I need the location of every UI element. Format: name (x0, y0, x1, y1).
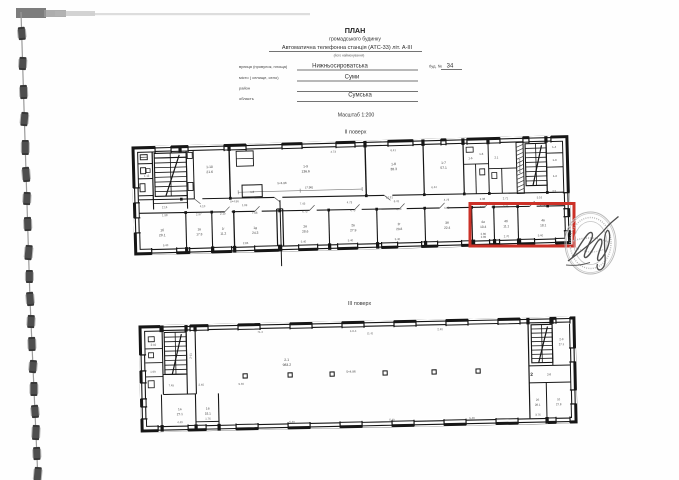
svg-text:1б: 1б (160, 228, 164, 232)
svg-text:область: область (239, 96, 254, 101)
svg-text:1.8: 1.8 (250, 190, 254, 194)
svg-text:2.45: 2.45 (198, 383, 204, 387)
svg-text:2в: 2в (351, 223, 355, 227)
svg-text:27.9: 27.9 (350, 228, 357, 232)
svg-text:2.97: 2.97 (196, 212, 202, 216)
svg-text:ІІІ поверх: ІІІ поверх (348, 301, 372, 307)
svg-text:5×4.96: 5×4.96 (230, 199, 239, 203)
svg-text:1-10: 1-10 (206, 165, 213, 169)
svg-text:5.40: 5.40 (301, 239, 307, 243)
svg-text:27.1: 27.1 (177, 412, 184, 416)
svg-text:2-1: 2-1 (284, 358, 289, 362)
svg-text:2.86: 2.86 (481, 232, 487, 236)
svg-text:5.40: 5.40 (238, 382, 244, 386)
svg-text:(7.96): (7.96) (305, 185, 313, 189)
svg-text:1-6: 1-6 (479, 152, 484, 156)
svg-text:1а: 1а (178, 407, 182, 411)
svg-text:17.91: 17.91 (386, 195, 394, 199)
svg-text:10: 10 (557, 397, 561, 401)
svg-text:ІІ поверх: ІІ поверх (345, 130, 367, 136)
svg-text:2.40: 2.40 (437, 327, 443, 331)
svg-text:1-3: 1-3 (552, 158, 557, 162)
svg-text:5.40: 5.40 (163, 243, 169, 247)
svg-text:буд. №: буд. № (429, 64, 442, 69)
svg-text:1-8: 1-8 (391, 162, 396, 166)
svg-text:1.98: 1.98 (162, 213, 168, 217)
svg-text:2.70: 2.70 (504, 234, 510, 238)
svg-text:1.99: 1.99 (242, 203, 248, 207)
svg-text:11.1: 11.1 (503, 224, 509, 228)
svg-text:Суми: Суми (345, 75, 360, 81)
svg-text:5.16: 5.16 (537, 195, 543, 199)
svg-text:4.73: 4.73 (444, 206, 450, 210)
svg-text:4.73: 4.73 (347, 200, 353, 204)
svg-text:5×4.96: 5×4.96 (346, 369, 356, 373)
svg-text:18.1: 18.1 (540, 223, 547, 227)
svg-text:5.40: 5.40 (348, 238, 354, 242)
svg-text:4б: 4б (504, 219, 508, 223)
svg-text:район: район (239, 86, 250, 91)
svg-text:2.5: 2.5 (552, 189, 556, 193)
svg-text:23.8: 23.8 (396, 227, 403, 231)
svg-text:2.10: 2.10 (220, 212, 226, 216)
svg-text:1д: 1д (253, 226, 257, 230)
svg-text:71.4: 71.4 (257, 330, 263, 334)
svg-text:1-7: 1-7 (441, 161, 446, 165)
svg-text:20.1: 20.1 (159, 233, 166, 237)
svg-text:1-5: 1-5 (468, 156, 473, 160)
svg-text:1.76: 1.76 (205, 417, 211, 421)
svg-text:2.1: 2.1 (494, 155, 498, 159)
svg-text:2.98: 2.98 (480, 197, 486, 201)
svg-text:4а: 4а (481, 220, 485, 224)
svg-text:4.73: 4.73 (302, 209, 308, 213)
svg-text:1.99: 1.99 (150, 370, 156, 374)
svg-text:34: 34 (447, 64, 454, 70)
svg-text:1-12: 1-12 (144, 174, 150, 178)
svg-text:136.6: 136.6 (301, 169, 310, 173)
svg-text:5.40: 5.40 (469, 416, 475, 420)
svg-text:3б: 3б (445, 221, 449, 225)
svg-text:4.10: 4.10 (200, 204, 206, 208)
svg-text:5×4.96: 5×4.96 (277, 181, 287, 185)
svg-text:4.73: 4.73 (350, 208, 356, 212)
svg-text:28.6: 28.6 (302, 229, 309, 233)
svg-text:10.4: 10.4 (480, 225, 487, 229)
svg-text:7.45: 7.45 (300, 201, 306, 205)
svg-text:4-0-4: 4-0-4 (350, 329, 357, 333)
svg-text:28.1: 28.1 (535, 403, 541, 407)
svg-text:5.40: 5.40 (289, 420, 295, 424)
svg-text:громадського будинку: громадського будинку (329, 37, 381, 43)
svg-text:6.41: 6.41 (390, 148, 396, 152)
svg-text:4в: 4в (541, 218, 545, 222)
svg-text:27.1: 27.1 (559, 342, 565, 346)
svg-text:22.4: 22.4 (444, 226, 451, 230)
svg-text:4.73: 4.73 (330, 150, 336, 154)
svg-text:5.40: 5.40 (538, 233, 544, 237)
svg-text:2.08: 2.08 (480, 205, 486, 209)
svg-text:1-9: 1-9 (303, 164, 308, 168)
svg-text:2.71: 2.71 (503, 196, 509, 200)
svg-text:7.45: 7.45 (168, 383, 174, 387)
svg-text:місто ( селище, село): місто ( селище, село) (239, 75, 279, 80)
svg-text:5.40: 5.40 (395, 237, 401, 241)
svg-text:1-4: 1-4 (552, 145, 557, 149)
svg-text:6.41: 6.41 (394, 199, 400, 203)
svg-text:17.3: 17.3 (196, 232, 203, 236)
svg-text:ПЛАН: ПЛАН (345, 26, 366, 35)
svg-text:4.49: 4.49 (177, 420, 183, 424)
svg-text:38.3: 38.3 (390, 167, 397, 171)
svg-text:(його найменування): (його найменування) (334, 54, 365, 58)
svg-text:18.1: 18.1 (205, 412, 212, 416)
svg-text:Автоматична телефонна станція: Автоматична телефонна станція (АТС-33) л… (282, 45, 413, 51)
svg-text:3.76: 3.76 (535, 413, 541, 417)
svg-text:57.1: 57.1 (440, 166, 447, 170)
svg-text:1-2: 1-2 (553, 174, 558, 178)
svg-text:2-9: 2-9 (559, 337, 564, 341)
svg-text:5.40: 5.40 (389, 418, 395, 422)
svg-text:2-11: 2-11 (189, 353, 193, 359)
svg-text:венткамера: венткамера (518, 158, 521, 173)
svg-text:2.16: 2.16 (162, 205, 168, 209)
svg-text:Сумська: Сумська (348, 93, 372, 99)
svg-text:2-10: 2-10 (151, 343, 157, 347)
svg-text:Нижньосироватська: Нижньосироватська (312, 64, 368, 70)
svg-text:2.86: 2.86 (243, 241, 249, 245)
svg-text:2-8: 2-8 (547, 372, 552, 376)
svg-text:7.68: 7.68 (252, 211, 258, 215)
svg-text:2б: 2б (303, 224, 307, 228)
svg-text:4.73: 4.73 (444, 198, 450, 202)
svg-text:21.6: 21.6 (206, 170, 213, 174)
svg-text:27.8: 27.8 (556, 402, 562, 406)
svg-text:1б: 1б (206, 407, 210, 411)
svg-text:Масштаб 1:200: Масштаб 1:200 (338, 113, 375, 119)
svg-text:(1-1): (1-1) (367, 331, 373, 335)
svg-text:вулиця (провулок, площа): вулиця (провулок, площа) (239, 64, 288, 69)
svg-text:983.2: 983.2 (283, 363, 292, 367)
svg-text:24.3: 24.3 (252, 231, 259, 235)
svg-text:2б: 2б (536, 398, 540, 402)
svg-text:1в: 1в (197, 227, 201, 231)
svg-text:6.44: 6.44 (431, 185, 437, 189)
svg-text:4.73: 4.73 (396, 207, 402, 211)
svg-text:11.2: 11.2 (220, 232, 226, 236)
